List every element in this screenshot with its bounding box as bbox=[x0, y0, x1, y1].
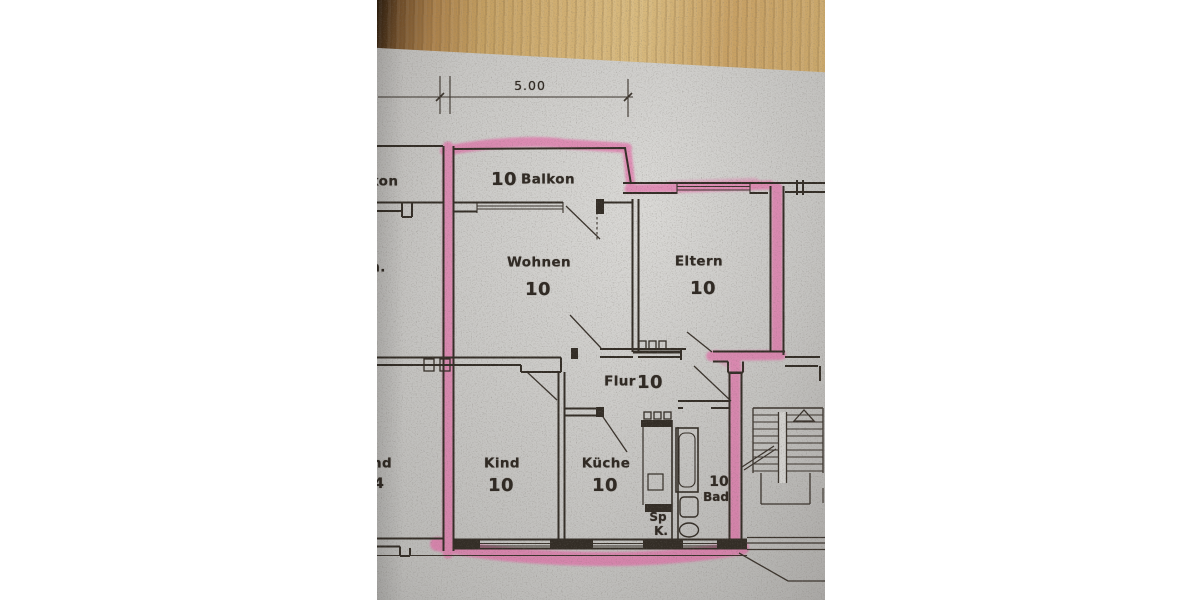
neighbor-balkon-partial: kon bbox=[377, 175, 398, 189]
photo-of-floorplan: 5.00 10 Balkon Wohnen 10 Eltern 10 Flur … bbox=[377, 0, 825, 600]
neighbor-wohnen-partial: n. bbox=[377, 261, 386, 275]
spk-label-line2: K. bbox=[654, 525, 668, 537]
eltern-area-label: 10 bbox=[690, 280, 716, 298]
kind-room-label: Kind bbox=[484, 457, 520, 471]
neighbor-kind-partial: nd bbox=[377, 457, 392, 471]
bad-room-label: Bad bbox=[703, 491, 729, 503]
kueche-area-label: 10 bbox=[592, 477, 618, 495]
balkon-area-label: 10 bbox=[491, 171, 517, 189]
flur-room-label: Flur bbox=[604, 375, 636, 389]
bad-area-label: 10 bbox=[709, 475, 728, 489]
spk-label-line1: Sp bbox=[649, 511, 666, 523]
paper-grain-texture bbox=[377, 0, 825, 600]
wohnen-area-label: 10 bbox=[525, 281, 551, 299]
floorplan-drawing bbox=[377, 0, 825, 600]
neighbor-kind-area-partial: 4 bbox=[377, 477, 384, 491]
eltern-room-label: Eltern bbox=[675, 255, 723, 269]
wohnen-room-label: Wohnen bbox=[507, 256, 571, 270]
kind-area-label: 10 bbox=[488, 477, 514, 495]
dimension-label: 5.00 bbox=[514, 80, 546, 93]
screenshot: 5.00 10 Balkon Wohnen 10 Eltern 10 Flur … bbox=[0, 0, 1200, 600]
flur-area-label: 10 bbox=[637, 374, 663, 392]
balkon-room-label: Balkon bbox=[521, 173, 575, 187]
kueche-room-label: Küche bbox=[582, 457, 631, 471]
